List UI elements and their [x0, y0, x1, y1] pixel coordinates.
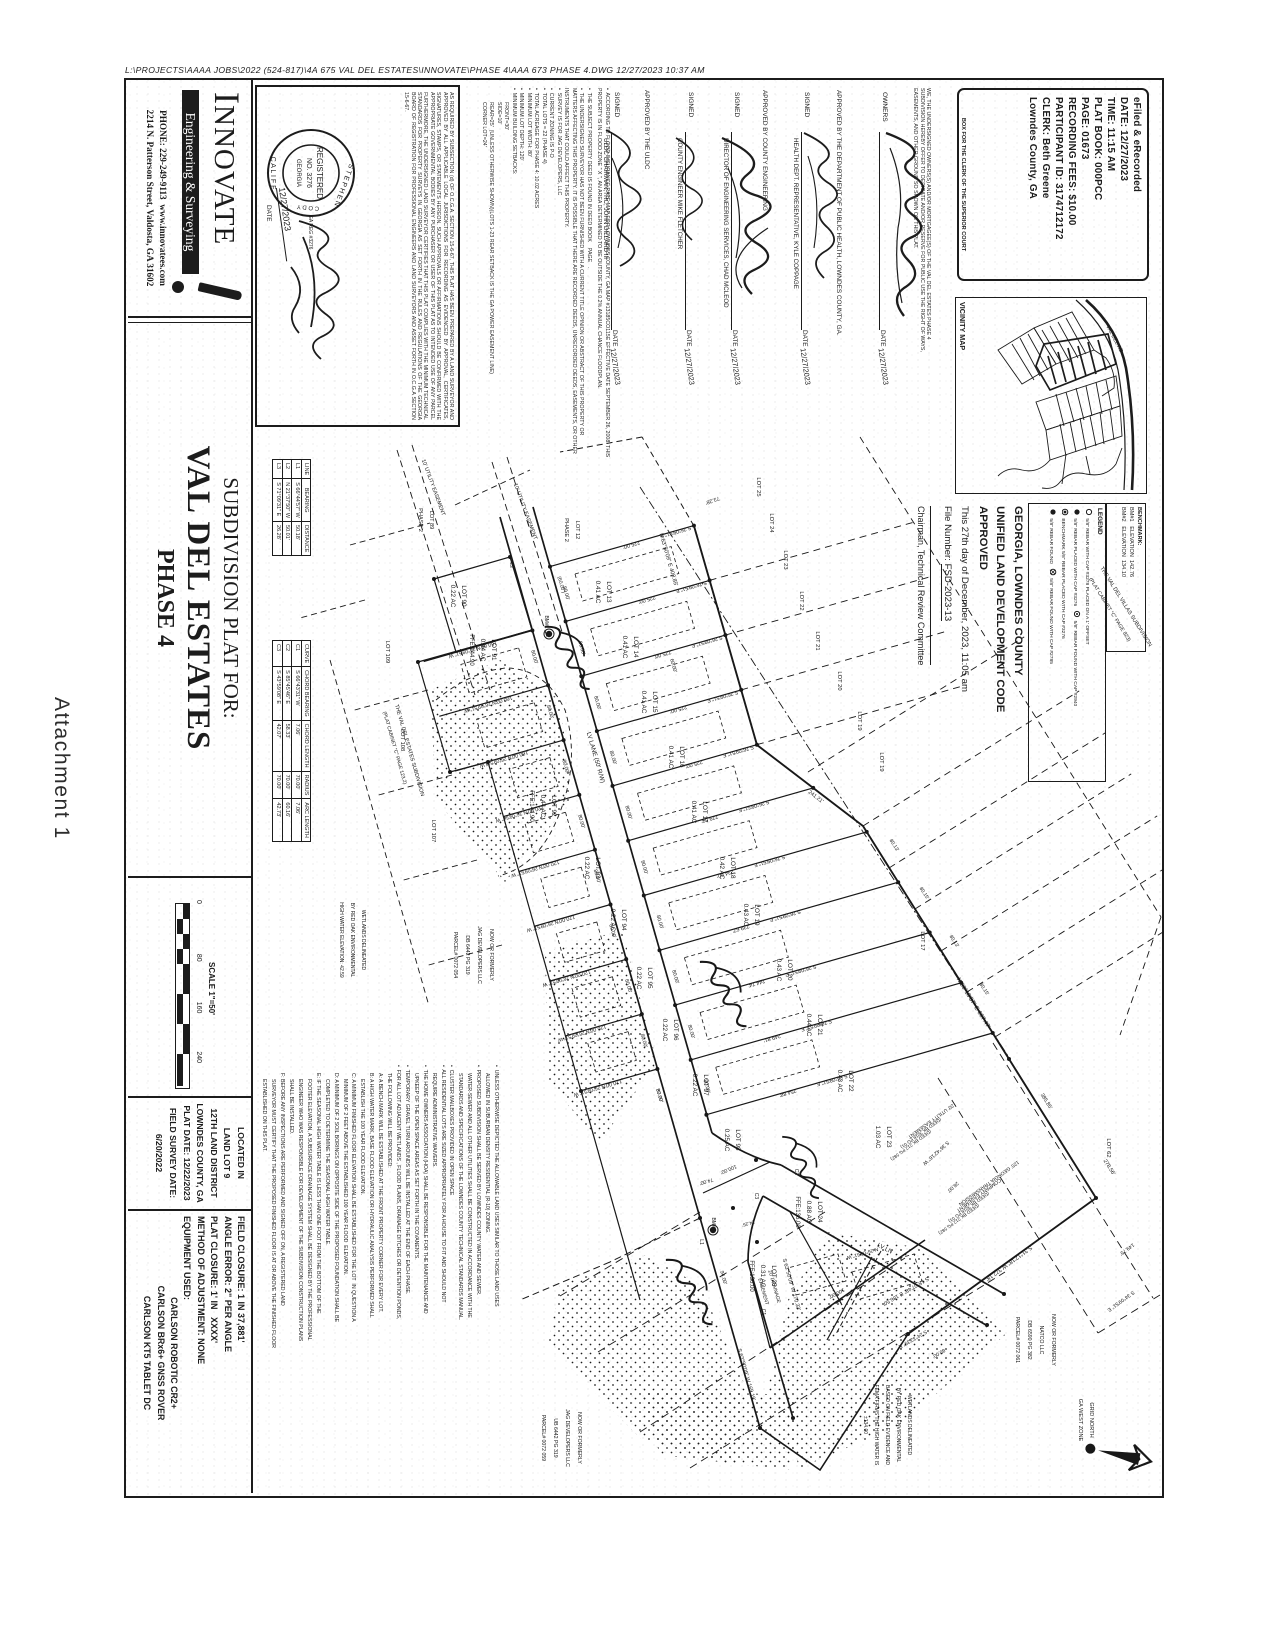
svg-text:S 34°09'51" E: S 34°09'51" E: [1105, 1289, 1135, 1313]
svg-text:0.41 AC: 0.41 AC: [690, 801, 697, 824]
svg-text:FFE:136.00: FFE:136.00: [748, 1260, 754, 1292]
svg-text:0.22 AC: 0.22 AC: [691, 1074, 698, 1097]
svg-text:LOT 14: LOT 14: [632, 636, 639, 658]
svg-text:0.88 AC: 0.88 AC: [805, 1201, 812, 1224]
svg-text:S 26°09'51" E: S 26°09'51" E: [768, 908, 801, 923]
svg-text:L1: L1: [698, 1239, 704, 1245]
svg-text:LOT 23: LOT 23: [885, 1126, 892, 1148]
svg-text:S 26°09'51" E: S 26°09'51" E: [753, 853, 786, 868]
svg-text:S 26°09'51" E: S 26°09'51" E: [674, 579, 707, 594]
svg-text:LV LANE (50' R/W): LV LANE (50' R/W): [585, 731, 606, 784]
svg-text:0.22 AC: 0.22 AC: [583, 857, 590, 880]
svg-text:N 26°09'51" W: N 26°09'51" W: [447, 644, 480, 659]
svg-text:0.22 AC: 0.22 AC: [449, 585, 456, 608]
svg-text:225.00': 225.00': [669, 703, 688, 714]
svg-text:DB 6590 PG 382: DB 6590 PG 382: [1026, 1320, 1032, 1359]
svg-text:73.28': 73.28': [704, 495, 720, 506]
svg-text:GA WEST ZONE: GA WEST ZONE: [1077, 1399, 1083, 1442]
svg-text:24.25': 24.25': [741, 1218, 755, 1227]
svg-text:PARCEL# 0072 061: PARCEL# 0072 061: [1014, 1317, 1020, 1363]
svg-text:225.00': 225.00': [653, 648, 672, 659]
svg-text:0.25 AC: 0.25 AC: [723, 1129, 730, 1152]
svg-text:LOT 24: LOT 24: [816, 1201, 823, 1223]
svg-text:0.22 AC: 0.22 AC: [661, 1019, 668, 1042]
svg-text:FFE:136.00: FFE:136.00: [794, 1196, 800, 1228]
svg-text:225.00': 225.00': [638, 594, 657, 605]
svg-text:385.85': 385.85': [1039, 1092, 1053, 1110]
svg-text:80.00': 80.00': [576, 814, 586, 829]
svg-text:LOT 15: LOT 15: [651, 691, 658, 713]
svg-text:LOT 89: LOT 89: [428, 511, 434, 530]
svg-text:249.81': 249.81': [763, 1032, 782, 1043]
svg-text:LOT 25: LOT 25: [755, 477, 761, 496]
svg-text:LOT 13: LOT 13: [605, 581, 612, 603]
svg-text:C1: C1: [760, 1309, 766, 1316]
svg-text:80.15': 80.15': [918, 886, 930, 901]
svg-text:LOT 19: LOT 19: [856, 711, 862, 730]
svg-text:244.74': 244.74': [747, 977, 766, 988]
svg-text:LOT 96: LOT 96: [672, 1019, 679, 1041]
svg-text:0.41 AC: 0.41 AC: [594, 581, 601, 604]
svg-text:125' GEORGIA TRANSMISSION: 125' GEORGIA TRANSMISSION: [957, 1159, 1020, 1207]
svg-text:C2: C2: [793, 1169, 799, 1176]
svg-text:GRID NORTH: GRID NORTH: [1088, 1402, 1094, 1437]
svg-text:S 26°09'51" E: S 26°09'51" E: [737, 798, 770, 813]
svg-text:PARCEL# 0072 059: PARCEL# 0072 059: [540, 1415, 546, 1461]
svg-text:LOT 22: LOT 22: [847, 1070, 854, 1092]
svg-text:BY RED OAK ENVIRONMENTAL: BY RED OAK ENVIRONMENTAL: [349, 903, 355, 978]
svg-text:S 26°09'51" E: S 26°09'51" E: [815, 1072, 848, 1087]
svg-text:0.43 AC: 0.43 AC: [775, 959, 782, 982]
svg-text:UB 6442 PG 319: UB 6442 PG 319: [552, 1418, 558, 1457]
svg-text:HIGH WATER ELEVATION: 42.59: HIGH WATER ELEVATION: 42.59: [338, 902, 344, 978]
svg-text:WETLANDS DELINEATED: WETLANDS DELINEATED: [360, 910, 366, 971]
svg-text:LOT 16: LOT 16: [678, 746, 685, 768]
svg-text:LOT 23: LOT 23: [782, 550, 788, 569]
svg-text:LOT 20: LOT 20: [836, 671, 842, 690]
svg-text:LOT 94: LOT 94: [620, 909, 627, 931]
svg-text:S 26°09'51" E: S 26°09'51" E: [706, 689, 739, 704]
svg-text:80.00': 80.00': [670, 969, 680, 984]
svg-text:239.67': 239.67': [732, 923, 751, 934]
svg-text:80.00': 80.00': [686, 1024, 696, 1039]
svg-text:NOW OR FORMERLY: NOW OR FORMERLY: [1050, 1314, 1056, 1366]
svg-text:WETLANDS DELINEATED: WETLANDS DELINEATED: [906, 1395, 912, 1456]
svg-text:LOT 22: LOT 22: [798, 591, 804, 610]
svg-text:74.00': 74.00': [699, 1176, 714, 1186]
svg-text:PHASE 2: PHASE 2: [417, 508, 423, 532]
svg-text:LOT 90: LOT 90: [460, 585, 467, 607]
svg-text:JAG DEVELOPERS LLC: JAG DEVELOPERS LLC: [476, 926, 482, 984]
svg-text:LOT 19: LOT 19: [878, 752, 884, 771]
svg-text:LOT 12: LOT 12: [574, 521, 580, 540]
svg-text:241.21': 241.21': [807, 790, 825, 805]
svg-text:LOT 92: LOT 92: [550, 795, 557, 817]
svg-text:10' UTILITY EASEMENT: 10' UTILITY EASEMENT: [420, 459, 446, 518]
svg-text:LOT 98: LOT 98: [734, 1129, 741, 1151]
svg-text:LOT 19: LOT 19: [753, 904, 760, 926]
svg-text:S 31°12'18" W 372.18': S 31°12'18" W 372.18': [984, 1244, 1033, 1282]
svg-text:S 36°42'16" W: S 36°42'16" W: [921, 1139, 950, 1166]
svg-text:JAG DEVELOPERS LLC: JAG DEVELOPERS LLC: [564, 1409, 570, 1467]
svg-text:LOT 109: LOT 109: [384, 641, 390, 663]
svg-text:80.00': 80.00': [623, 805, 633, 820]
svg-text:±134.00: ±134.00: [862, 1416, 868, 1434]
svg-text:N 26°09'51" W: N 26°09'51" W: [526, 918, 559, 933]
svg-text:80.00': 80.00': [639, 860, 649, 875]
svg-text:LOT 21: LOT 21: [814, 631, 820, 650]
svg-text:BASED ON FIELD EVIDENCE AND: BASED ON FIELD EVIDENCE AND: [884, 1385, 890, 1465]
svg-text:0.41 AC: 0.41 AC: [621, 636, 628, 659]
svg-text:FEMA FIRMS THE HIGH WATER IS: FEMA FIRMS THE HIGH WATER IS: [873, 1385, 879, 1466]
svg-text:80.15': 80.15': [978, 982, 990, 997]
svg-text:149.75': 149.75': [1118, 1241, 1135, 1256]
svg-text:NATCO LLC: NATCO LLC: [1038, 1326, 1044, 1355]
svg-text:NOW OR FORMERLY: NOW OR FORMERLY: [488, 929, 494, 981]
svg-text:LOT 17: LOT 17: [919, 931, 925, 950]
svg-text:28.00': 28.00': [946, 1180, 960, 1194]
svg-text:C3: C3: [753, 1193, 759, 1200]
svg-text:120.00': 120.00': [557, 913, 576, 924]
svg-text:80.00': 80.00': [608, 750, 618, 765]
svg-text:100.00': 100.00': [719, 1163, 737, 1175]
svg-text:225.00': 225.00': [622, 539, 641, 550]
svg-text:PARCEL# 0072 054: PARCEL# 0072 054: [452, 932, 458, 978]
svg-text:S 26°09'51" E: S 26°09'51" E: [721, 744, 754, 759]
svg-text:DB 6442 PG 319: DB 6442 PG 319: [464, 935, 470, 974]
svg-text:254.88': 254.88': [778, 1087, 797, 1098]
svg-text:1.03 AC: 1.03 AC: [874, 1126, 881, 1149]
svg-text:(DEED BK 3018 PG 01): (DEED BK 3018 PG 01): [899, 1117, 942, 1150]
svg-text:S 26°09'51" E: S 26°09'51" E: [690, 634, 723, 649]
svg-text:LOT 62: LOT 62: [1105, 1138, 1111, 1157]
svg-text:80.00': 80.00': [529, 650, 539, 665]
svg-text:0.22 AC: 0.22 AC: [635, 967, 642, 990]
svg-text:80.00': 80.00': [655, 915, 665, 930]
svg-text:80.13': 80.13': [948, 934, 960, 949]
svg-text:0.41 AC: 0.41 AC: [640, 691, 647, 714]
svg-text:80.00': 80.00': [592, 695, 602, 710]
svg-text:80.00': 80.00': [654, 1088, 664, 1103]
svg-text:278.56': 278.56': [1102, 1158, 1116, 1176]
svg-text:LOT 95: LOT 95: [646, 967, 653, 989]
svg-text:225.00': 225.00': [685, 758, 704, 769]
svg-text:LOT 24: LOT 24: [768, 513, 774, 533]
svg-text:0.41 AC: 0.41 AC: [667, 746, 674, 769]
svg-text:PHASE 2: PHASE 2: [563, 518, 569, 542]
svg-text:NOW OR FORMERLY: NOW OR FORMERLY: [576, 1412, 582, 1464]
svg-text:120.00': 120.00': [541, 858, 560, 869]
svg-text:80.13': 80.13': [888, 838, 900, 853]
svg-text:BY RED OAK ENVIRONMENTAL: BY RED OAK ENVIRONMENTAL: [895, 1388, 901, 1463]
svg-text:LOT 107: LOT 107: [430, 820, 436, 842]
